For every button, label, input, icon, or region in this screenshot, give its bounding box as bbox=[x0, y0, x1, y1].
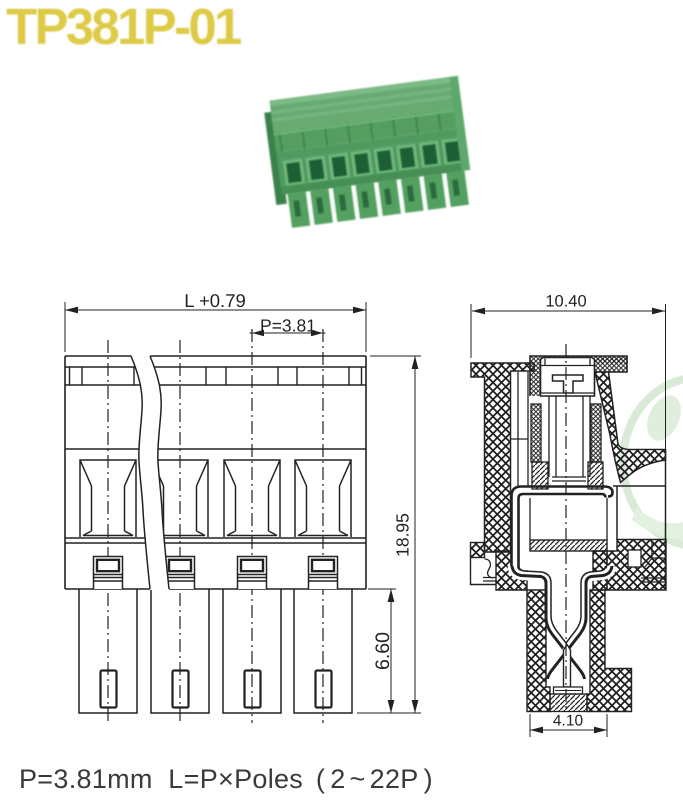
svg-text:10.40: 10.40 bbox=[545, 293, 586, 311]
svg-text:4.10: 4.10 bbox=[553, 713, 584, 730]
svg-text:6.60: 6.60 bbox=[372, 632, 394, 670]
svg-text:18.95: 18.95 bbox=[393, 513, 413, 557]
svg-text:P=3.81: P=3.81 bbox=[260, 316, 316, 336]
svg-text:L +0.79: L +0.79 bbox=[184, 290, 246, 311]
